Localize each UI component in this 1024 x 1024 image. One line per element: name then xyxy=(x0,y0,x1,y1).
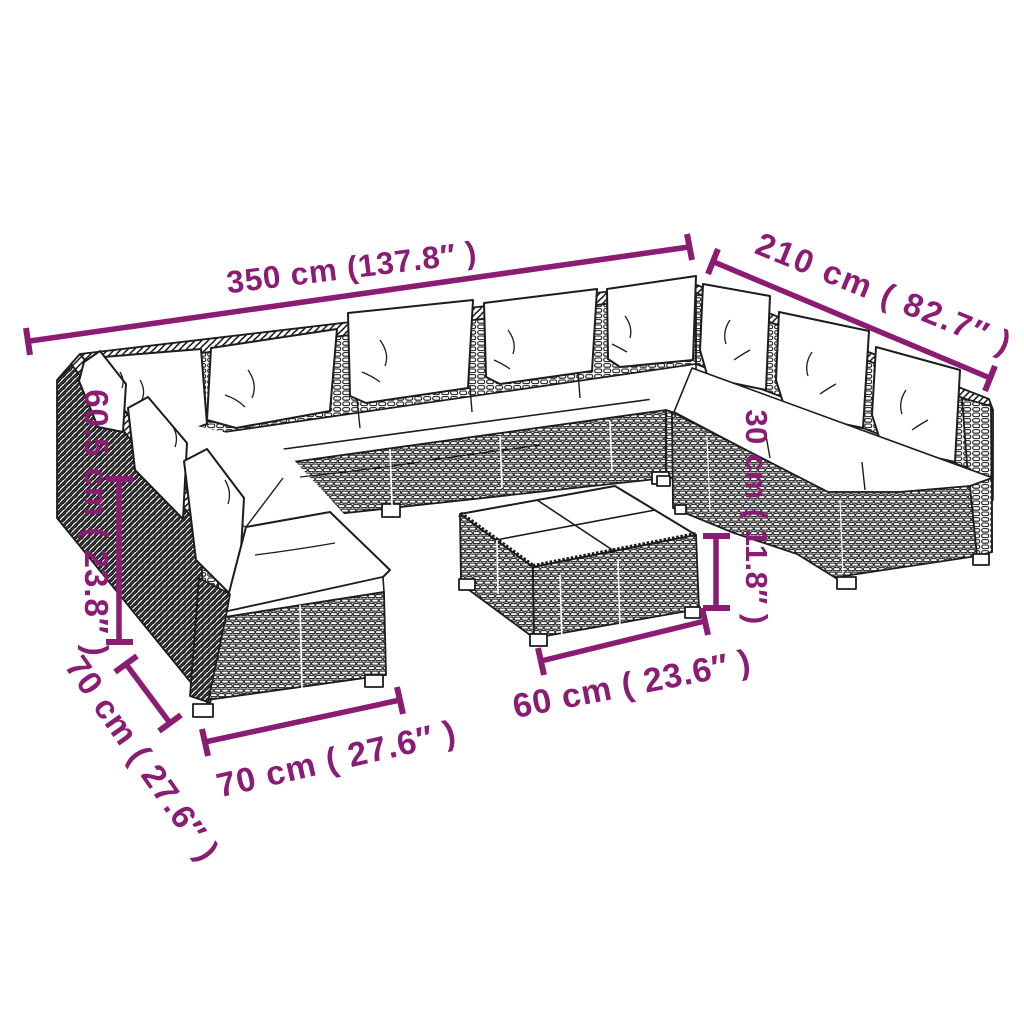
svg-text:30 cm ( 11.8″ ): 30 cm ( 11.8″ ) xyxy=(739,409,774,624)
svg-text:60.5 cm ( 23.8″ ): 60.5 cm ( 23.8″ ) xyxy=(78,389,115,657)
